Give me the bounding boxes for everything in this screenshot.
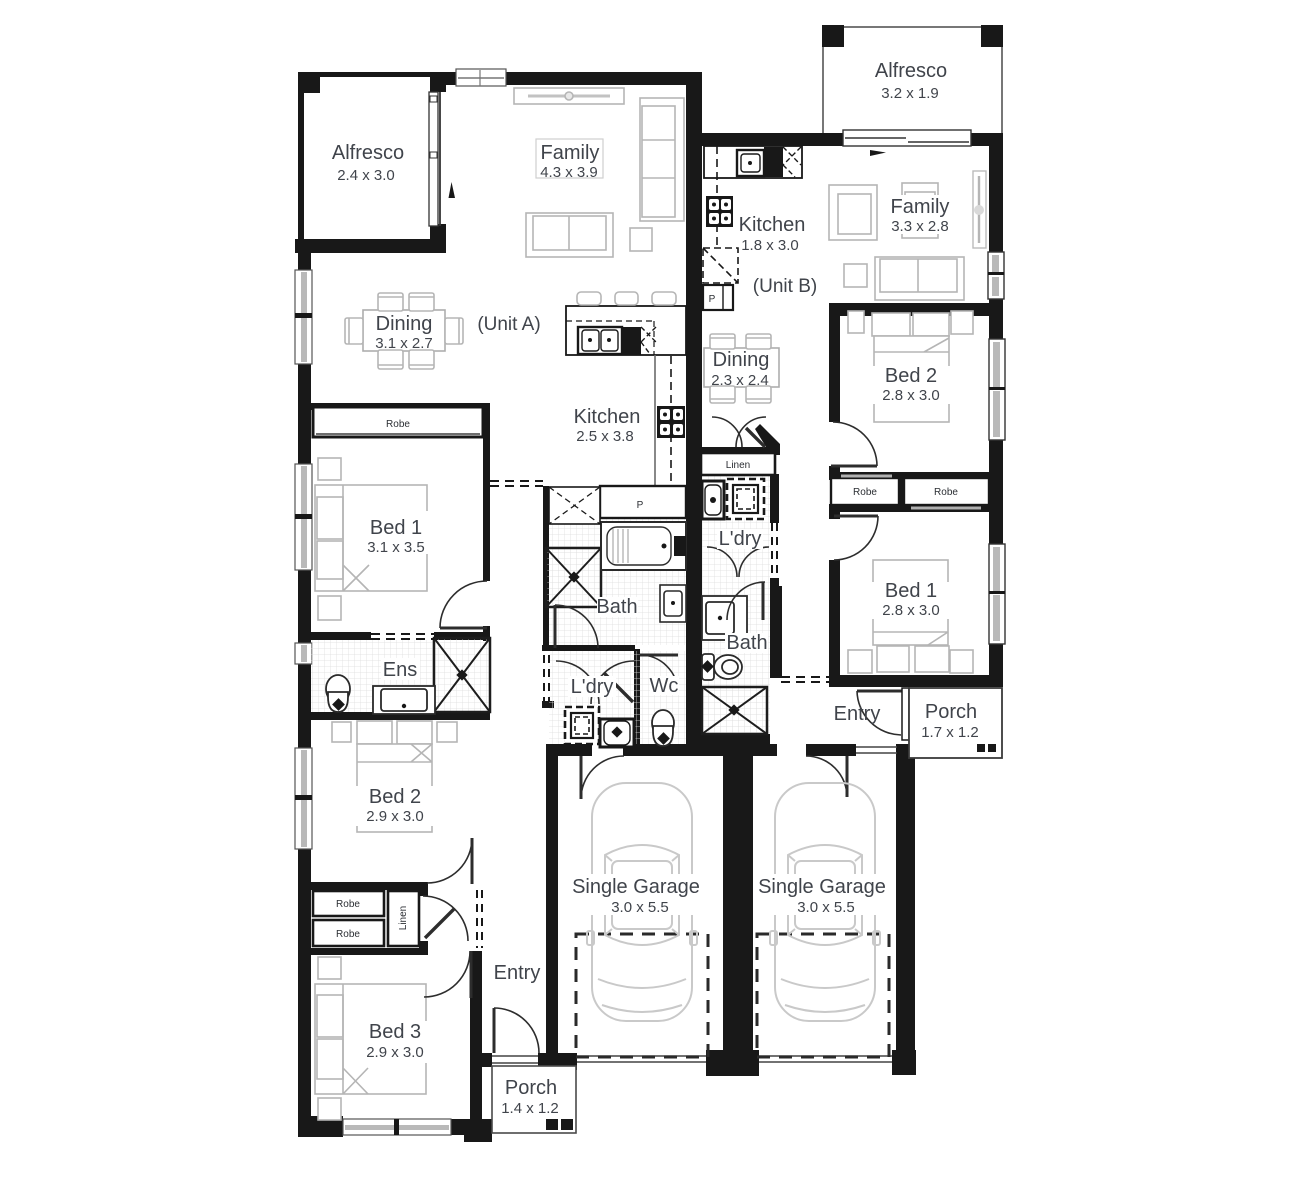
svg-text:3.2 x 1.9: 3.2 x 1.9 <box>881 85 939 102</box>
svg-text:2.3 x 2.4: 2.3 x 2.4 <box>711 372 769 389</box>
svg-text:Bed 2: Bed 2 <box>369 786 421 808</box>
svg-text:Robe: Robe <box>934 487 958 498</box>
svg-text:Porch: Porch <box>505 1077 557 1099</box>
svg-text:1.8 x 3.0: 1.8 x 3.0 <box>741 237 799 254</box>
svg-text:(Unit B): (Unit B) <box>753 276 817 297</box>
svg-text:Single Garage: Single Garage <box>572 876 700 898</box>
svg-text:Bed 3: Bed 3 <box>369 1021 421 1043</box>
svg-text:(Unit A): (Unit A) <box>477 314 540 335</box>
svg-text:P: P <box>637 500 644 511</box>
svg-text:L'dry: L'dry <box>571 676 614 698</box>
svg-text:1.7 x 1.2: 1.7 x 1.2 <box>921 724 979 741</box>
svg-text:P: P <box>709 294 716 305</box>
svg-text:Bath: Bath <box>596 596 637 618</box>
svg-text:Ens: Ens <box>383 659 417 681</box>
svg-text:Linen: Linen <box>398 906 409 930</box>
svg-text:Family: Family <box>541 142 600 164</box>
svg-text:Linen: Linen <box>726 460 750 471</box>
svg-text:Single Garage: Single Garage <box>758 876 886 898</box>
svg-text:Robe: Robe <box>853 487 877 498</box>
svg-text:2.8 x 3.0: 2.8 x 3.0 <box>882 602 940 619</box>
svg-text:2.4 x 3.0: 2.4 x 3.0 <box>337 167 395 184</box>
svg-text:3.0 x 5.5: 3.0 x 5.5 <box>611 899 669 916</box>
svg-text:Robe: Robe <box>336 929 360 940</box>
svg-text:Bed 2: Bed 2 <box>885 365 937 387</box>
svg-text:Bed 1: Bed 1 <box>885 580 937 602</box>
svg-text:L'dry: L'dry <box>719 528 762 550</box>
svg-text:1.4 x 1.2: 1.4 x 1.2 <box>501 1100 559 1117</box>
svg-text:3.0 x 5.5: 3.0 x 5.5 <box>797 899 855 916</box>
svg-text:Porch: Porch <box>925 701 977 723</box>
svg-text:2.5 x 3.8: 2.5 x 3.8 <box>576 428 634 445</box>
svg-text:3.3 x 2.8: 3.3 x 2.8 <box>891 218 949 235</box>
svg-text:Entry: Entry <box>494 962 541 984</box>
svg-text:Kitchen: Kitchen <box>739 214 806 236</box>
svg-text:2.8 x 3.0: 2.8 x 3.0 <box>882 387 940 404</box>
svg-text:Entry: Entry <box>834 703 881 725</box>
svg-text:Robe: Robe <box>386 419 410 430</box>
svg-text:Wc: Wc <box>650 675 679 697</box>
svg-text:4.3 x 3.9: 4.3 x 3.9 <box>540 164 598 181</box>
svg-text:Robe: Robe <box>336 899 360 910</box>
svg-text:Dining: Dining <box>713 349 770 371</box>
svg-text:Kitchen: Kitchen <box>574 406 641 428</box>
svg-text:2.9 x 3.0: 2.9 x 3.0 <box>366 1044 424 1061</box>
svg-text:3.1 x 3.5: 3.1 x 3.5 <box>367 539 425 556</box>
svg-text:Bath: Bath <box>726 632 767 654</box>
svg-text:Family: Family <box>891 196 950 218</box>
svg-text:3.1 x 2.7: 3.1 x 2.7 <box>375 335 433 352</box>
svg-text:Alfresco: Alfresco <box>875 60 947 82</box>
svg-text:Alfresco: Alfresco <box>332 142 404 164</box>
svg-text:2.9 x 3.0: 2.9 x 3.0 <box>366 808 424 825</box>
svg-text:Dining: Dining <box>376 313 433 335</box>
svg-text:Bed 1: Bed 1 <box>370 517 422 539</box>
